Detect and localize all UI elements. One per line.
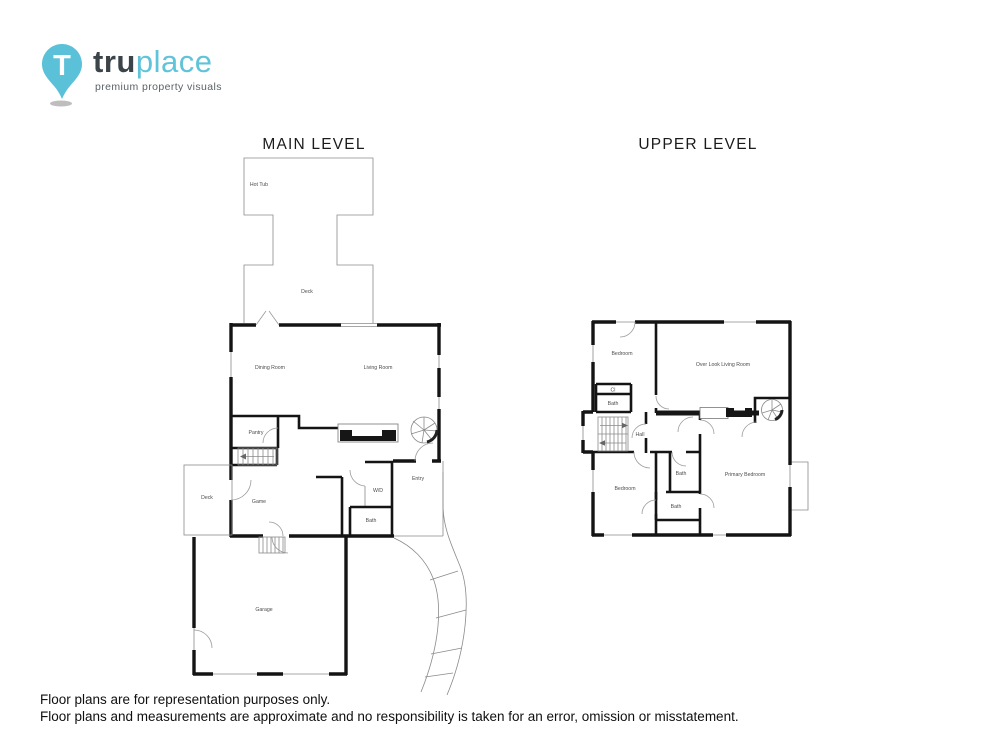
room-label-bath-mid: Bath: [676, 471, 687, 477]
floor-plan-page: T truplace premium property visuals MAIN…: [0, 0, 1000, 750]
room-label-overlook: Over Look Living Room: [696, 362, 750, 368]
room-label-primary-bedroom: Primary Bedroom: [725, 472, 765, 478]
room-label-bath-top: Bath: [608, 401, 619, 407]
room-label-garage: Garage: [255, 607, 272, 613]
room-label-bedroom-front: Bedroom: [611, 351, 632, 357]
room-label-bath-lower: Bath: [671, 504, 682, 510]
kitchen-counter: [338, 424, 398, 442]
upper-spiral-stairs-icon: [762, 400, 783, 421]
room-label-hot-tub: Hot Tub: [250, 182, 268, 188]
room-label-wd: W/D: [373, 488, 383, 494]
room-label-bath-main: Bath: [366, 518, 377, 524]
room-label-pantry: Pantry: [249, 430, 264, 436]
room-label-dining-room: Dining Room: [255, 365, 285, 371]
upper-level-plan: Bedroom Over Look Living Room Cl Bath Ha…: [583, 321, 808, 536]
room-label-closet: Cl: [611, 388, 616, 394]
upper-stairs-icon: [598, 417, 628, 451]
walkway-path: [394, 472, 466, 695]
overlook-railing: [700, 408, 752, 419]
stairs-icon: [238, 448, 277, 465]
room-label-living-room: Living Room: [364, 365, 393, 371]
disclaimer-line-2: Floor plans and measurements are approxi…: [40, 709, 739, 726]
room-label-bedroom-rear: Bedroom: [614, 486, 635, 492]
room-label-game: Game: [252, 499, 266, 505]
door-swings-upper: [620, 322, 757, 514]
room-label-hall: Hall: [636, 432, 645, 438]
room-label-side-deck: Deck: [201, 495, 213, 501]
room-label-upper-deck: Deck: [301, 289, 313, 295]
room-label-entry: Entry: [412, 476, 425, 482]
disclaimer: Floor plans are for representation purpo…: [40, 692, 739, 725]
floor-plans-canvas: Hot Tub Deck Dining Room Living Room Pan…: [0, 0, 1000, 750]
spiral-stairs-icon: [411, 417, 437, 443]
disclaimer-line-1: Floor plans are for representation purpo…: [40, 692, 739, 709]
garage-walls: [193, 537, 347, 675]
main-level-plan: Hot Tub Deck Dining Room Living Room Pan…: [184, 158, 466, 695]
